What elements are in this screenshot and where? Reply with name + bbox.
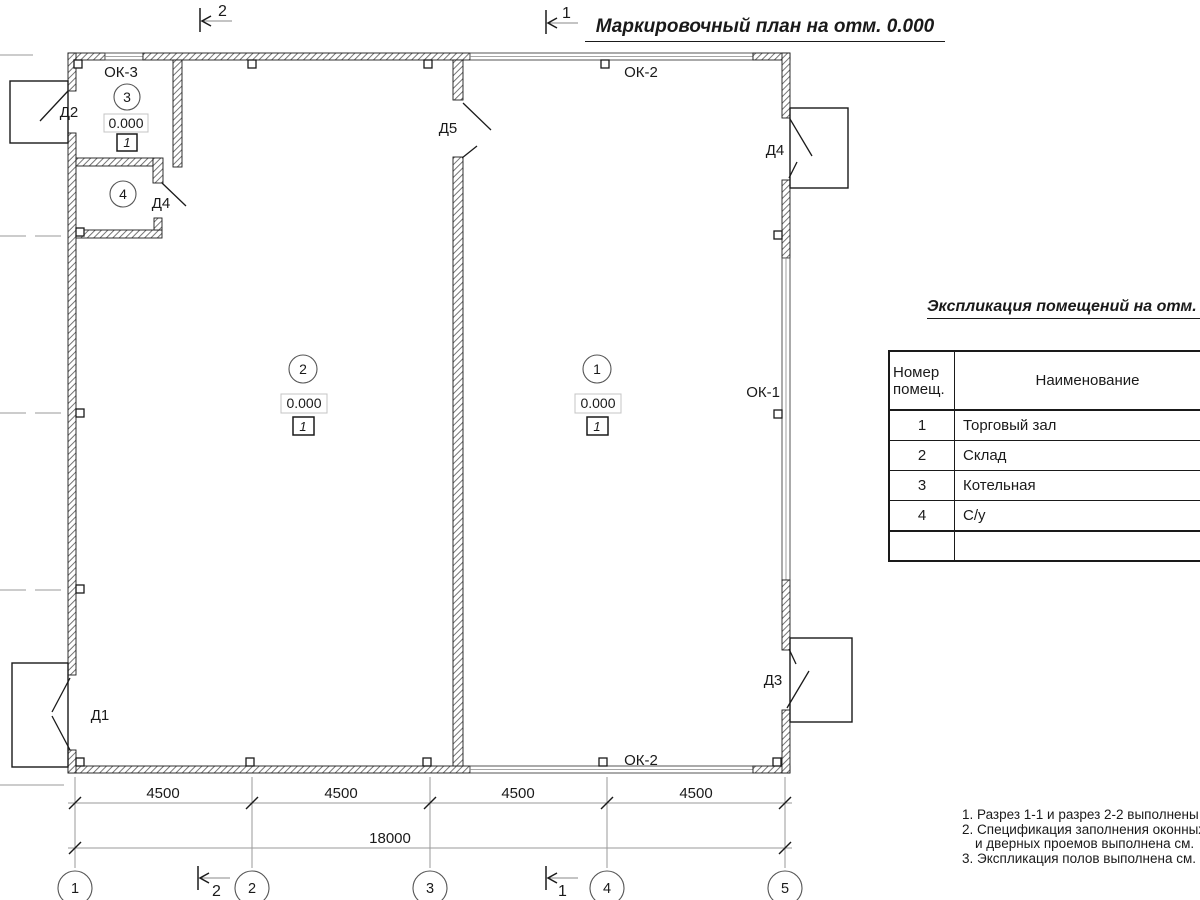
- room-name-cell: С/у: [955, 501, 1200, 532]
- table-row: 4 С/у: [889, 501, 1200, 532]
- explication-title: Экспликация помещений на отм. 0.000: [927, 298, 1200, 319]
- note-line: 3. Экспликация полов выполнена см.: [962, 852, 1200, 867]
- dim-span-1: 4500: [146, 785, 179, 802]
- interior-walls: [76, 60, 463, 766]
- room-number-cell: 4: [889, 501, 955, 532]
- window-mark-ok2-top: ОК-2: [624, 64, 658, 81]
- room-name-cell: Торговый зал: [955, 410, 1200, 441]
- window-mark-ok1: ОК-1: [746, 384, 780, 401]
- grid-bubble-5: 5: [781, 881, 789, 897]
- floor-type: 1: [299, 419, 306, 434]
- room-number: 2: [299, 361, 307, 377]
- room-number-cell: 3: [889, 471, 955, 501]
- room-number-cell: 2: [889, 441, 955, 471]
- door-mark-d5: Д5: [439, 120, 458, 137]
- room-number: 1: [593, 361, 601, 377]
- window-mark-ok2-bottom: ОК-2: [624, 752, 658, 769]
- table-row: 1 Торговый зал: [889, 410, 1200, 441]
- dim-span-4: 4500: [679, 785, 712, 802]
- door-mark-d4-right: Д4: [766, 142, 785, 159]
- room-number-cell: 1: [889, 410, 955, 441]
- section-mark-1-top: 1: [562, 5, 571, 22]
- col-header-number: Номер помещ.: [889, 351, 955, 410]
- room-2-annotation: 2 0.000 1: [281, 355, 327, 435]
- room-level: 0.000: [580, 395, 615, 411]
- note-line: 2. Спецификация заполнения оконных: [962, 823, 1200, 838]
- door-mark-d4-room: Д4: [152, 195, 171, 212]
- room-number: 4: [119, 186, 127, 202]
- dimension-lines: 4500 4500 4500 4500 18000: [68, 777, 792, 868]
- axis-stub-lines: [0, 55, 68, 785]
- grid-bubble-3: 3: [426, 881, 434, 897]
- note-line: и дверных проемов выполнена см.: [962, 837, 1200, 852]
- room-1-annotation: 1 0.000 1: [575, 355, 621, 435]
- room-name-cell: Котельная: [955, 471, 1200, 501]
- room-name-cell: Склад: [955, 441, 1200, 471]
- room-level: 0.000: [286, 395, 321, 411]
- grid-bubble-1: 1: [71, 881, 79, 897]
- section-mark-1-bottom: 1: [558, 883, 567, 900]
- drawing-sheet: ОК-3 3 0.000 1 4 Д4 2 0.000 1 1 0.000 1 …: [0, 0, 1200, 900]
- entrance-porches: [10, 81, 852, 767]
- note-line: 1. Разрез 1-1 и разрез 2-2 выполнены: [962, 808, 1200, 823]
- table-header-row: Номер помещ. Наименование: [889, 351, 1200, 410]
- dim-total: 18000: [369, 830, 411, 847]
- table-row: 3 Котельная: [889, 471, 1200, 501]
- table-empty-row: [889, 531, 1200, 561]
- door-mark-d1: Д1: [91, 707, 110, 724]
- room-3-annotation: ОК-3 3 0.000 1: [104, 64, 148, 151]
- grid-bubble-2: 2: [248, 881, 256, 897]
- room-level: 0.000: [108, 115, 143, 131]
- drawing-title: Маркировочный план на отм. 0.000: [585, 16, 945, 42]
- room-4-annotation: 4 Д4: [110, 181, 170, 212]
- door-swings: [40, 91, 812, 750]
- general-notes: 1. Разрез 1-1 и разрез 2-2 выполнены 2. …: [962, 808, 1200, 866]
- col-header-name: Наименование: [955, 351, 1200, 410]
- window-mark-ok3: ОК-3: [104, 64, 138, 81]
- section-mark-2-top: 2: [218, 3, 227, 20]
- explication-table: Номер помещ. Наименование 1 Торговый зал…: [888, 350, 1200, 562]
- door-mark-d3: Д3: [764, 672, 783, 689]
- room-number: 3: [123, 89, 131, 105]
- dim-span-3: 4500: [501, 785, 534, 802]
- grid-bubble-4: 4: [603, 881, 611, 897]
- floor-type: 1: [123, 135, 130, 150]
- dim-span-2: 4500: [324, 785, 357, 802]
- floor-type: 1: [593, 419, 600, 434]
- section-mark-2-bottom: 2: [212, 883, 221, 900]
- table-row: 2 Склад: [889, 441, 1200, 471]
- grid-bubbles: 1 2 3 4 5: [58, 871, 802, 900]
- door-mark-d2: Д2: [60, 104, 79, 121]
- opening-marks: Д2 Д1 Д5 Д4 Д3 ОК-1 ОК-2 ОК-2: [60, 64, 785, 769]
- section-marks: 2 1 2 1: [198, 3, 578, 900]
